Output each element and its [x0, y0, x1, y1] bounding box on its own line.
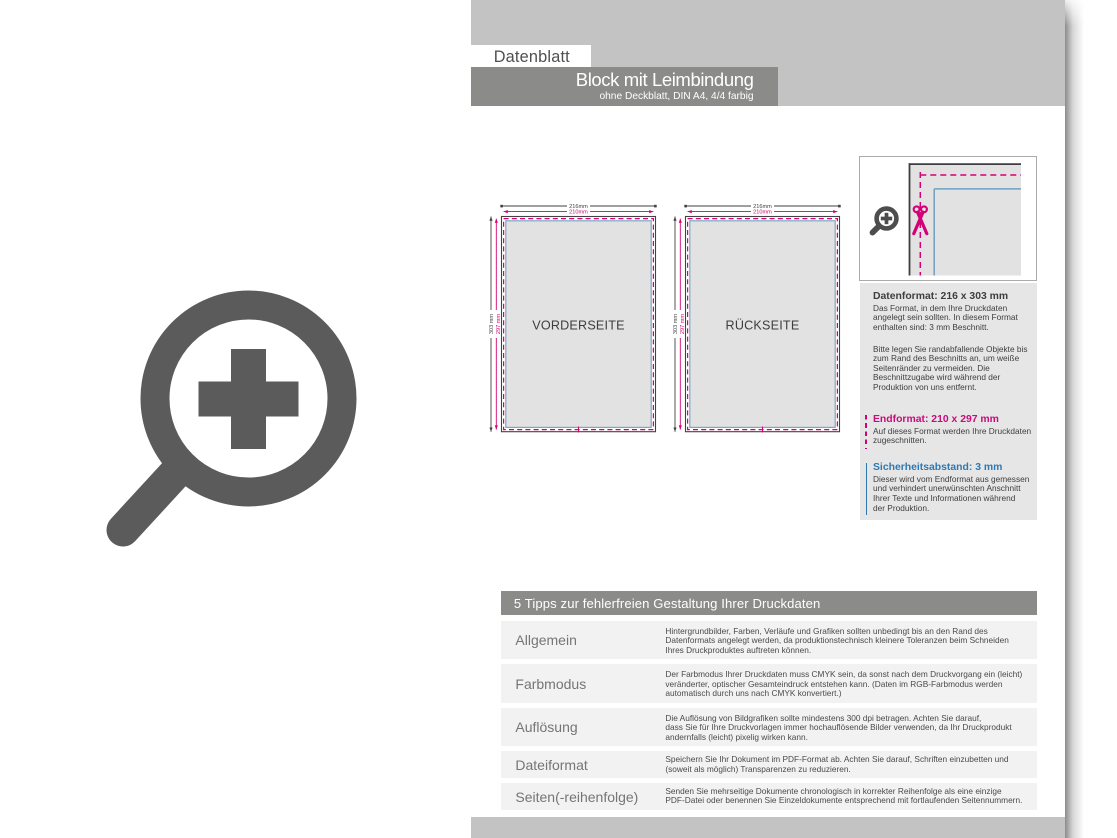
svg-text:297 mm: 297 mm [496, 314, 502, 335]
svg-text:210mm: 210mm [753, 210, 772, 216]
svg-text:RÜCKSEITE: RÜCKSEITE [725, 319, 799, 333]
svg-text:VORDERSEITE: VORDERSEITE [532, 319, 624, 333]
svg-text:210mm: 210mm [569, 210, 588, 216]
svg-text:297 mm: 297 mm [680, 314, 686, 335]
svg-text:303 mm: 303 mm [672, 314, 678, 335]
svg-text:303 mm: 303 mm [489, 314, 495, 335]
